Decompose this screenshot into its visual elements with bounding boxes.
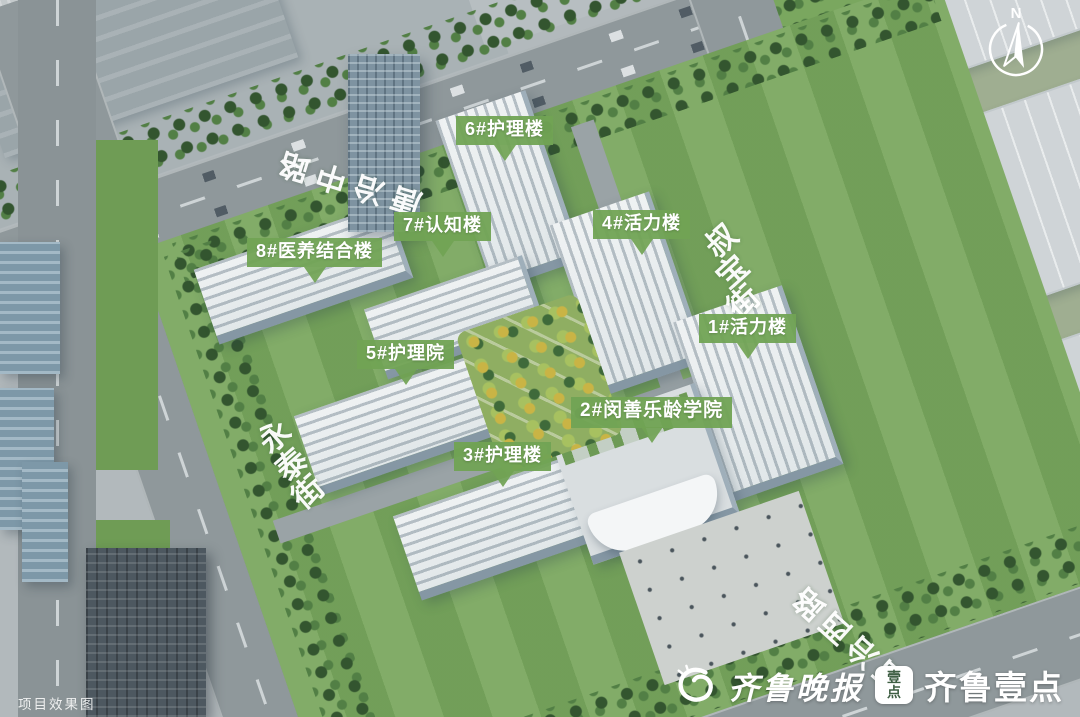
label-pointer [492, 471, 514, 487]
label-building-6-text: 6#护理楼 [465, 119, 544, 139]
app-name: 齐鲁壹点 [924, 661, 1064, 709]
label-building-2: 2#闵善乐龄学院 [571, 397, 732, 428]
label-building-1-text: 1#活力楼 [708, 317, 787, 337]
label-pointer [494, 145, 516, 161]
label-building-2-text: 2#闵善乐龄学院 [580, 400, 723, 421]
yidian-app-icon-text: 壹点 [885, 670, 903, 701]
glass-tower-1 [0, 242, 60, 374]
label-building-3-text: 3#护理楼 [463, 445, 542, 465]
label-building-7-text: 7#认知楼 [403, 215, 482, 235]
label-pointer [304, 267, 326, 283]
image-caption: 项目效果图 [18, 693, 96, 713]
label-building-3: 3#护理楼 [454, 442, 551, 471]
tree-row-west-road [96, 140, 158, 470]
label-building-6: 6#护理楼 [456, 116, 553, 145]
label-building-5-text: 5#护理院 [366, 343, 445, 363]
swirl-logo-icon [673, 663, 717, 707]
label-building-4-text: 4#活力楼 [602, 213, 681, 233]
compass-north-icon: N [984, 3, 1048, 81]
label-building-8-text: 8#医养结合楼 [256, 241, 373, 261]
watermark: 齐鲁晚报 壹点 齐鲁壹点 [673, 661, 1064, 709]
dark-residential-building [86, 548, 206, 717]
newspaper-name: 齐鲁晚报 [728, 663, 864, 708]
label-building-4: 4#活力楼 [593, 210, 690, 239]
label-pointer [737, 343, 759, 359]
yidian-app-icon: 壹点 [875, 666, 913, 704]
label-pointer [631, 239, 653, 255]
label-pointer [641, 427, 663, 443]
label-building-1: 1#活力楼 [699, 314, 796, 343]
label-pointer [432, 241, 454, 257]
label-building-8: 8#医养结合楼 [247, 238, 382, 267]
aerial-rendering: 6#护理楼 7#认知楼 4#活力楼 8#医养结合楼 1#活力楼 5#护理院 2#… [0, 0, 1080, 717]
label-pointer [395, 369, 417, 385]
label-building-5: 5#护理院 [357, 340, 454, 369]
glass-tower-3 [22, 462, 68, 582]
label-building-7: 7#认知楼 [394, 212, 491, 241]
compass-letter: N [1011, 5, 1022, 22]
compass-arrow [1004, 22, 1028, 68]
